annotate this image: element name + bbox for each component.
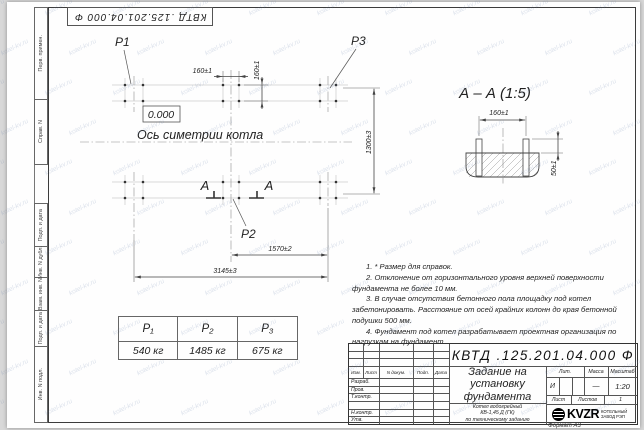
mass-value: — — [584, 377, 608, 395]
col-list: Лист — [363, 366, 379, 378]
load-table: P₁ P₂ P₃ 540 кг 1485 кг 675 кг — [118, 316, 298, 360]
load-table-value-p1: 540 кг — [119, 342, 178, 359]
technical-notes: 1. * Размер для справок. 2. Отклонение о… — [352, 262, 634, 348]
scale-value: 1:20 — [608, 377, 637, 395]
note-3: 3. В случае отсутствия бетонного пола пл… — [352, 294, 634, 326]
load-table-header-p2: P₂ — [178, 317, 237, 342]
col-doc: N докум. — [379, 366, 413, 378]
role-tcontrol: Т.контр. — [349, 393, 381, 401]
mass-label: Масса — [584, 366, 608, 377]
role-approver: Утв. — [349, 416, 381, 424]
load-table-header-p1: P₁ — [119, 317, 178, 342]
lit-label: Лит. — [546, 366, 584, 377]
col-date: Дата — [433, 366, 449, 378]
sheets-label: Листов — [571, 395, 604, 404]
col-sign: Подп. — [413, 366, 433, 378]
dim-1570: 1570±2 — [268, 246, 291, 253]
extension-lines — [134, 71, 380, 282]
role-ncontrol: Н.контр. — [349, 409, 381, 416]
lit-value: И — [546, 377, 559, 395]
load-table-value-p3: 675 кг — [238, 342, 297, 359]
role-empty — [349, 401, 381, 409]
note-1: 1. * Размер для справок. — [352, 262, 634, 273]
title-block-product-name: Котел водогрейный КВ-1,45 Д (ГК) по техн… — [449, 403, 546, 424]
dim-160-section: 160±1 — [489, 110, 509, 117]
sheets-value: 1 — [604, 395, 637, 404]
section-extension-lines — [479, 116, 563, 153]
role-checker: Пров. — [349, 386, 381, 393]
dim-1300: 1300±3 — [366, 131, 373, 154]
note-2: 2. Отклонение от горизонтального уровня … — [352, 273, 634, 295]
load-label-p2: P2 — [241, 227, 256, 241]
title-block-designation: КВТД .125.201.04.000 Ф — [449, 344, 637, 366]
anchor-bolt-section-right — [523, 139, 529, 176]
load-label-p1: P1 — [115, 35, 130, 49]
load-label-p3: P3 — [351, 34, 366, 48]
section-cut-marks — [206, 191, 264, 198]
col-izm: Изм. — [349, 366, 363, 378]
load-table-value-p2: 1485 кг — [178, 342, 237, 359]
anchor-bolt-section-left — [476, 139, 482, 176]
kvzr-coil-icon — [552, 408, 565, 421]
title-block-document-name: Задание на установку фундамента — [449, 366, 546, 403]
section-view-title: А – А (1:5) — [458, 85, 531, 102]
format-label: Формат А3 — [548, 423, 581, 429]
elevation-value: 0.000 — [148, 109, 174, 121]
axis-centerlines — [80, 70, 352, 262]
kvzr-logo-caption: КОТЕЛЬНЫЙ ЗАВОД РЭП — [601, 409, 627, 419]
role-developer: Разраб. — [349, 378, 381, 386]
symmetry-axis-label: Ось симетрии котла — [137, 128, 263, 142]
sheet-label: Лист — [546, 395, 571, 404]
section-letter-left: А — [200, 178, 210, 193]
section-letter-right: А — [264, 178, 274, 193]
scale-label: Масштаб — [608, 366, 637, 377]
dim-50-section: 50±1 — [551, 160, 558, 176]
kvzr-logo-text: KVZR — [567, 407, 599, 421]
company-logo: KVZR КОТЕЛЬНЫЙ ЗАВОД РЭП — [552, 407, 627, 421]
title-block: КВТД .125.201.04.000 Ф Изм. Лист N докум… — [348, 343, 638, 425]
drawing-sheet: Перв. примен. Справ. N Подп. и дата Инв.… — [0, 0, 644, 430]
dim-3145: 3145±3 — [213, 268, 236, 275]
dim-160-horizontal: 160±1 — [193, 68, 213, 75]
dim-160-vertical: 160±1 — [254, 60, 261, 80]
load-table-header-p3: P₃ — [238, 317, 297, 342]
